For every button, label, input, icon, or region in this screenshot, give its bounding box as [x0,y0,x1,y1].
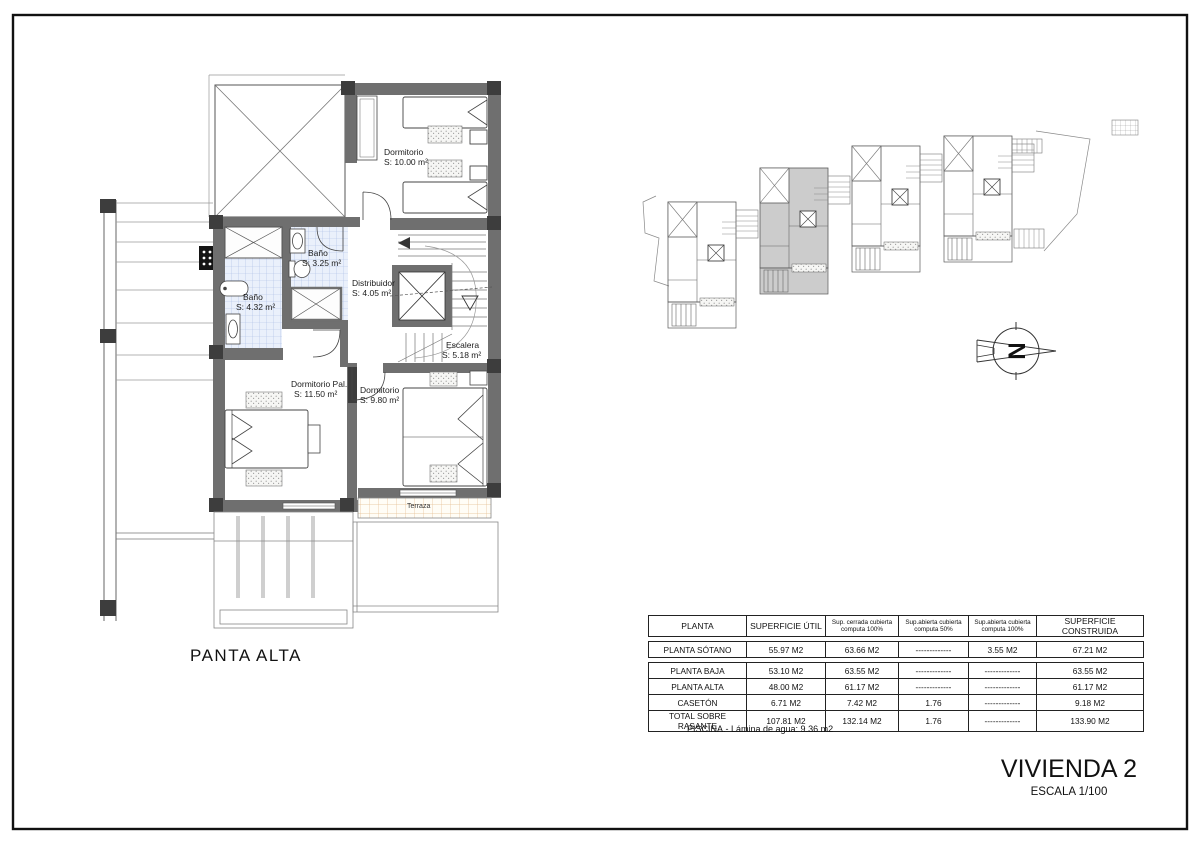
col-cerrada-100-line2: computa 100% [826,626,898,633]
room-label-dormitorio-1: Dormitorio [384,148,423,157]
col-planta: PLANTA [649,616,747,637]
lower-roof-structures [214,512,498,628]
table-row-baja: PLANTA BAJA 53.10 M2 63.55 M2 ----------… [649,663,1144,679]
room-label-bano-2: Baño [243,293,263,302]
table-row-caseton: CASETÓN 6.71 M2 7.42 M2 1.76 -----------… [649,695,1144,711]
header-row: PLANTA SUPERFICIE ÚTIL Sup. cerrada cubi… [649,616,1144,637]
col-abierta-50-line2: computa 50% [899,626,968,633]
col-abierta-100-line2: computa 100% [969,626,1036,633]
cell: ------------- [899,663,969,679]
room-label-escalera: Escalera [446,341,479,350]
cell: 53.10 M2 [747,663,826,679]
cell: PLANTA ALTA [649,679,747,695]
double-bed-2 [403,371,487,486]
cell: 67.21 M2 [1037,642,1144,658]
room-label-dormitorio-2: Dormitorio [360,386,399,395]
table-row-sotano: PLANTA SÓTANO 55.97 M2 63.66 M2 --------… [649,642,1144,658]
cell: 63.55 M2 [826,663,899,679]
main-floor-plan [100,75,501,628]
room-label-dormitorio-pal: Dormitorio Pal. [291,380,347,389]
cell: 3.55 M2 [969,642,1037,658]
pool-note: PISCINA.- Lámina de agua: 9.36 m2 [687,724,833,734]
room-area-dormitorio-1: S: 10.00 m² [384,158,428,167]
table-row-alta: PLANTA ALTA 48.00 M2 61.17 M2 ----------… [649,679,1144,695]
cell: 48.00 M2 [747,679,826,695]
cell: 1.76 [899,695,969,711]
room-label-distribuidor: Distribuidor [352,279,395,288]
sheet-title: VIVIENDA 2 [950,755,1188,784]
cell: 63.66 M2 [826,642,899,658]
cell: 63.55 M2 [1037,663,1144,679]
col-cerrada-100: Sup. cerrada cubierta computa 100% [826,616,899,637]
room-area-dormitorio-2: S: 9.80 m² [360,396,399,405]
site-key-plan [643,120,1138,328]
col-abierta-100: Sup.abierta cubierta computa 100% [969,616,1037,637]
cell: 55.97 M2 [747,642,826,658]
cell: PLANTA SÓTANO [649,642,747,658]
cell: 133.90 M2 [1037,711,1144,732]
areas-table-sotano: PLANTA SÓTANO 55.97 M2 63.66 M2 --------… [648,641,1144,658]
north-compass-icon: N [977,322,1056,380]
room-label-terraza: Terraza [407,503,430,510]
room-area-bano-2: S: 4.32 m² [236,303,275,312]
compass-north-letter: N [1003,342,1030,359]
cell: ------------- [899,679,969,695]
col-abierta-50: Sup.abierta cubierta computa 50% [899,616,969,637]
stair-direction-arrow [398,237,410,249]
areas-table-header: PLANTA SUPERFICIE ÚTIL Sup. cerrada cubi… [648,615,1144,637]
room-area-bano-1: S: 3.25 m² [302,259,341,268]
col-cerrada-100-line1: Sup. cerrada cubierta [826,619,898,626]
col-abierta-100-line1: Sup.abierta cubierta [969,619,1036,626]
col-superficie-construida: SUPERFICIE CONSTRUIDA [1037,616,1144,637]
sheet-scale: ESCALA 1/100 [950,786,1188,798]
cell: 6.71 M2 [747,695,826,711]
room-label-bano-1: Baño [308,249,328,258]
cell: 7.42 M2 [826,695,899,711]
room-area-distribuidor: S: 4.05 m² [352,289,391,298]
architectural-sheet: { "titleblock": { "project": "VIVIENDA 2… [0,0,1200,845]
cell: PLANTA BAJA [649,663,747,679]
cell: 1.76 [899,711,969,732]
cell: 61.17 M2 [826,679,899,695]
cell: ------------- [969,679,1037,695]
plan-caption: PANTA ALTA [190,646,302,666]
cell: 132.14 M2 [826,711,899,732]
cell: ------------- [969,663,1037,679]
room-area-dormitorio-pal: S: 11.50 m² [294,390,337,399]
areas-table-body: PLANTA BAJA 53.10 M2 63.55 M2 ----------… [648,662,1144,732]
room-area-escalera: S: 5.18 m² [442,351,481,360]
cell: ------------- [969,711,1037,732]
cell: CASETÓN [649,695,747,711]
col-abierta-50-line1: Sup.abierta cubierta [899,619,968,626]
cell: ------------- [969,695,1037,711]
double-bed-principal [225,392,320,486]
cell: 9.18 M2 [1037,695,1144,711]
cell: 61.17 M2 [1037,679,1144,695]
col-superficie-util: SUPERFICIE ÚTIL [747,616,826,637]
cell: ------------- [899,642,969,658]
